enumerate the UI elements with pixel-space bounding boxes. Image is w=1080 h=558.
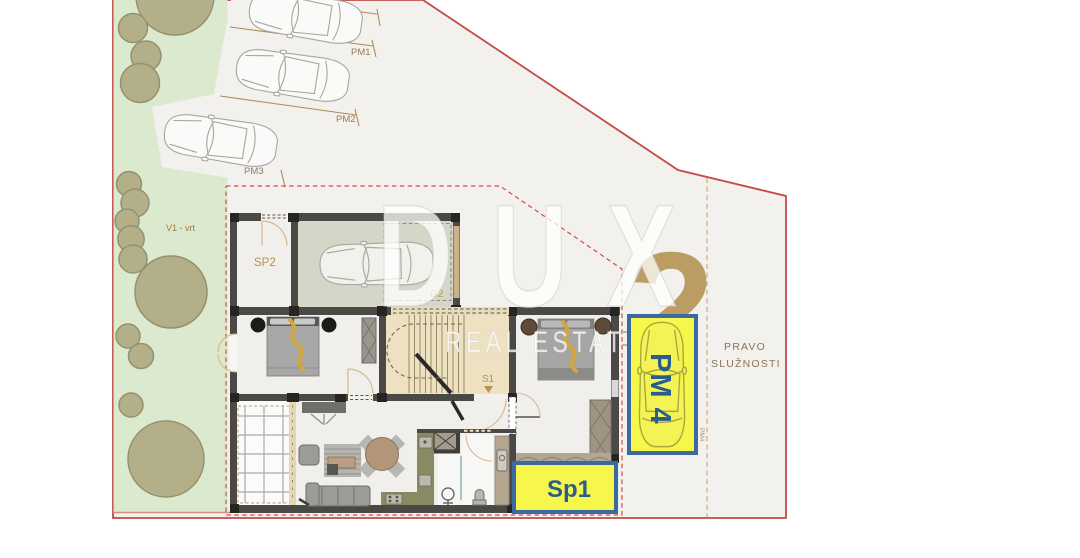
svg-text:V1 - vrt: V1 - vrt bbox=[166, 223, 196, 233]
svg-text:DUX: DUX bbox=[377, 174, 716, 337]
svg-text:PM1: PM1 bbox=[351, 47, 371, 58]
svg-text:PM 4: PM 4 bbox=[644, 353, 676, 425]
svg-text:PM3: PM3 bbox=[244, 166, 264, 177]
svg-text:PRAVO: PRAVO bbox=[724, 341, 766, 353]
svg-text:REAL ESTATE: REAL ESTATE bbox=[445, 325, 645, 359]
svg-text:SLUŽNOSTI: SLUŽNOSTI bbox=[711, 357, 781, 370]
svg-text:PM4: PM4 bbox=[698, 428, 705, 442]
svg-text:SP2: SP2 bbox=[254, 257, 276, 269]
svg-text:Sp1: Sp1 bbox=[547, 476, 591, 503]
svg-text:PM2: PM2 bbox=[336, 114, 356, 125]
svg-text:S1: S1 bbox=[482, 374, 495, 385]
